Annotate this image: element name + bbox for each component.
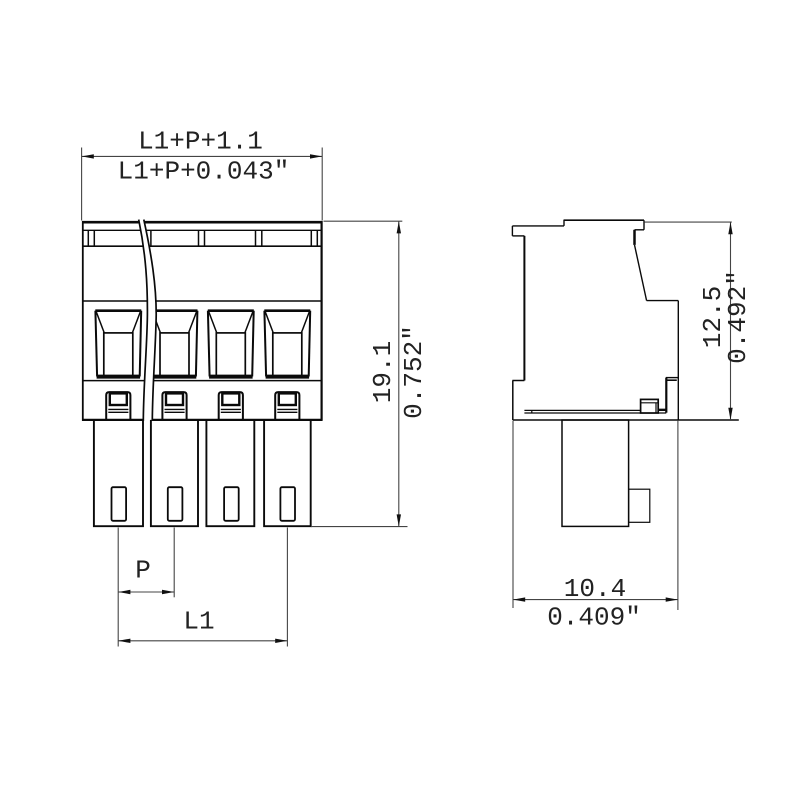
svg-text:L1: L1 xyxy=(183,606,214,636)
svg-text:19.1: 19.1 xyxy=(368,341,398,403)
svg-text:P: P xyxy=(135,556,151,586)
svg-text:L1+P+0.043": L1+P+0.043" xyxy=(118,157,290,187)
svg-text:0.492": 0.492" xyxy=(723,270,753,364)
svg-text:10.4: 10.4 xyxy=(564,574,626,604)
svg-text:L1+P+1.1: L1+P+1.1 xyxy=(138,127,263,157)
svg-text:0.409": 0.409" xyxy=(547,602,641,632)
svg-text:0.752": 0.752" xyxy=(399,325,429,419)
